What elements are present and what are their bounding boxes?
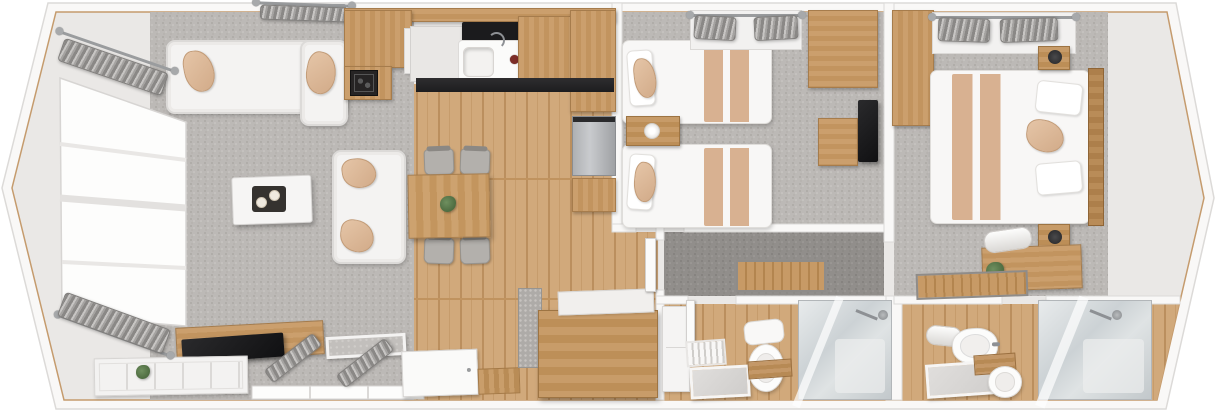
hallway-runner-rug bbox=[736, 260, 826, 292]
twin-wall-tv bbox=[858, 100, 878, 162]
twin-dressing-table bbox=[818, 118, 858, 166]
kitchen-cabinet-right bbox=[518, 16, 574, 82]
bathroom-caddy bbox=[747, 358, 792, 379]
master-lamp-bottom bbox=[1048, 230, 1062, 244]
floorplan-render bbox=[0, 0, 1221, 413]
log-burner-stove bbox=[350, 70, 378, 96]
twin-bed-1-runner bbox=[704, 44, 754, 122]
bathroom-shower-head bbox=[856, 302, 888, 320]
master-bed-runner bbox=[952, 74, 1006, 220]
dining-chair-2 bbox=[460, 148, 491, 175]
door-mat bbox=[478, 367, 521, 394]
master-pillow-bottom bbox=[1035, 160, 1084, 196]
master-pillow-top bbox=[1034, 80, 1083, 117]
bathroom-toilet-cistern bbox=[743, 318, 785, 346]
storage-bench-lid bbox=[558, 288, 655, 315]
twin-bed-2-runner bbox=[704, 148, 754, 226]
twin-curtain-right bbox=[753, 15, 798, 41]
fridge-freezer bbox=[572, 116, 616, 176]
hallway-door bbox=[645, 238, 656, 292]
kitchen-lower-units bbox=[416, 78, 614, 92]
dining-chair-1 bbox=[424, 148, 455, 175]
master-lamp-top bbox=[1048, 50, 1062, 64]
lounge-sideboard bbox=[94, 356, 249, 397]
twin-nightstand-lamp bbox=[644, 123, 660, 139]
front-door bbox=[401, 349, 479, 398]
lounge-top-curtain bbox=[260, 4, 348, 22]
bay-curtain-bottom bbox=[57, 292, 171, 355]
twin-overhead-locker bbox=[808, 10, 878, 88]
bathroom-vanity-mirror bbox=[689, 364, 751, 399]
ensuite-toilet bbox=[988, 366, 1022, 398]
furniture-layer bbox=[0, 0, 1221, 413]
dining-chair-4 bbox=[460, 237, 491, 264]
kitchen-tall-larder bbox=[570, 10, 616, 112]
storage-bench bbox=[538, 310, 658, 398]
bathroom-door bbox=[686, 300, 695, 346]
master-headboard bbox=[1088, 68, 1104, 226]
master-vanity-unit bbox=[892, 10, 934, 126]
ensuite-shower-head bbox=[1090, 302, 1122, 320]
master-runner-rug bbox=[916, 270, 1029, 300]
master-hanging-clothes-left bbox=[938, 17, 991, 43]
kitchen-corner-cabinet bbox=[344, 10, 412, 68]
master-hanging-clothes-right bbox=[1000, 17, 1059, 43]
kitchen-base-unit bbox=[572, 178, 616, 212]
bathroom-towel-rail bbox=[685, 339, 727, 368]
coffee-table-tray bbox=[252, 186, 286, 212]
dining-chair-3 bbox=[424, 237, 455, 264]
twin-curtain-left bbox=[693, 15, 736, 41]
bay-curtain-top bbox=[57, 38, 169, 97]
